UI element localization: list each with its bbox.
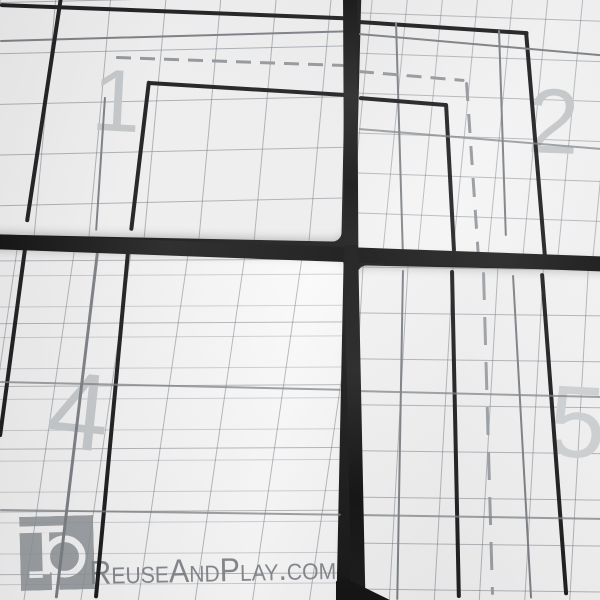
watermark-text: ReuseAndPlay.com	[89, 551, 336, 589]
page-number-1: 1	[90, 56, 143, 146]
pattern-sheets-photo: 1 2 4 5 ReuseAndPlay.com	[0, 0, 600, 600]
sheet-gap-vertical-top	[343, 0, 358, 248]
